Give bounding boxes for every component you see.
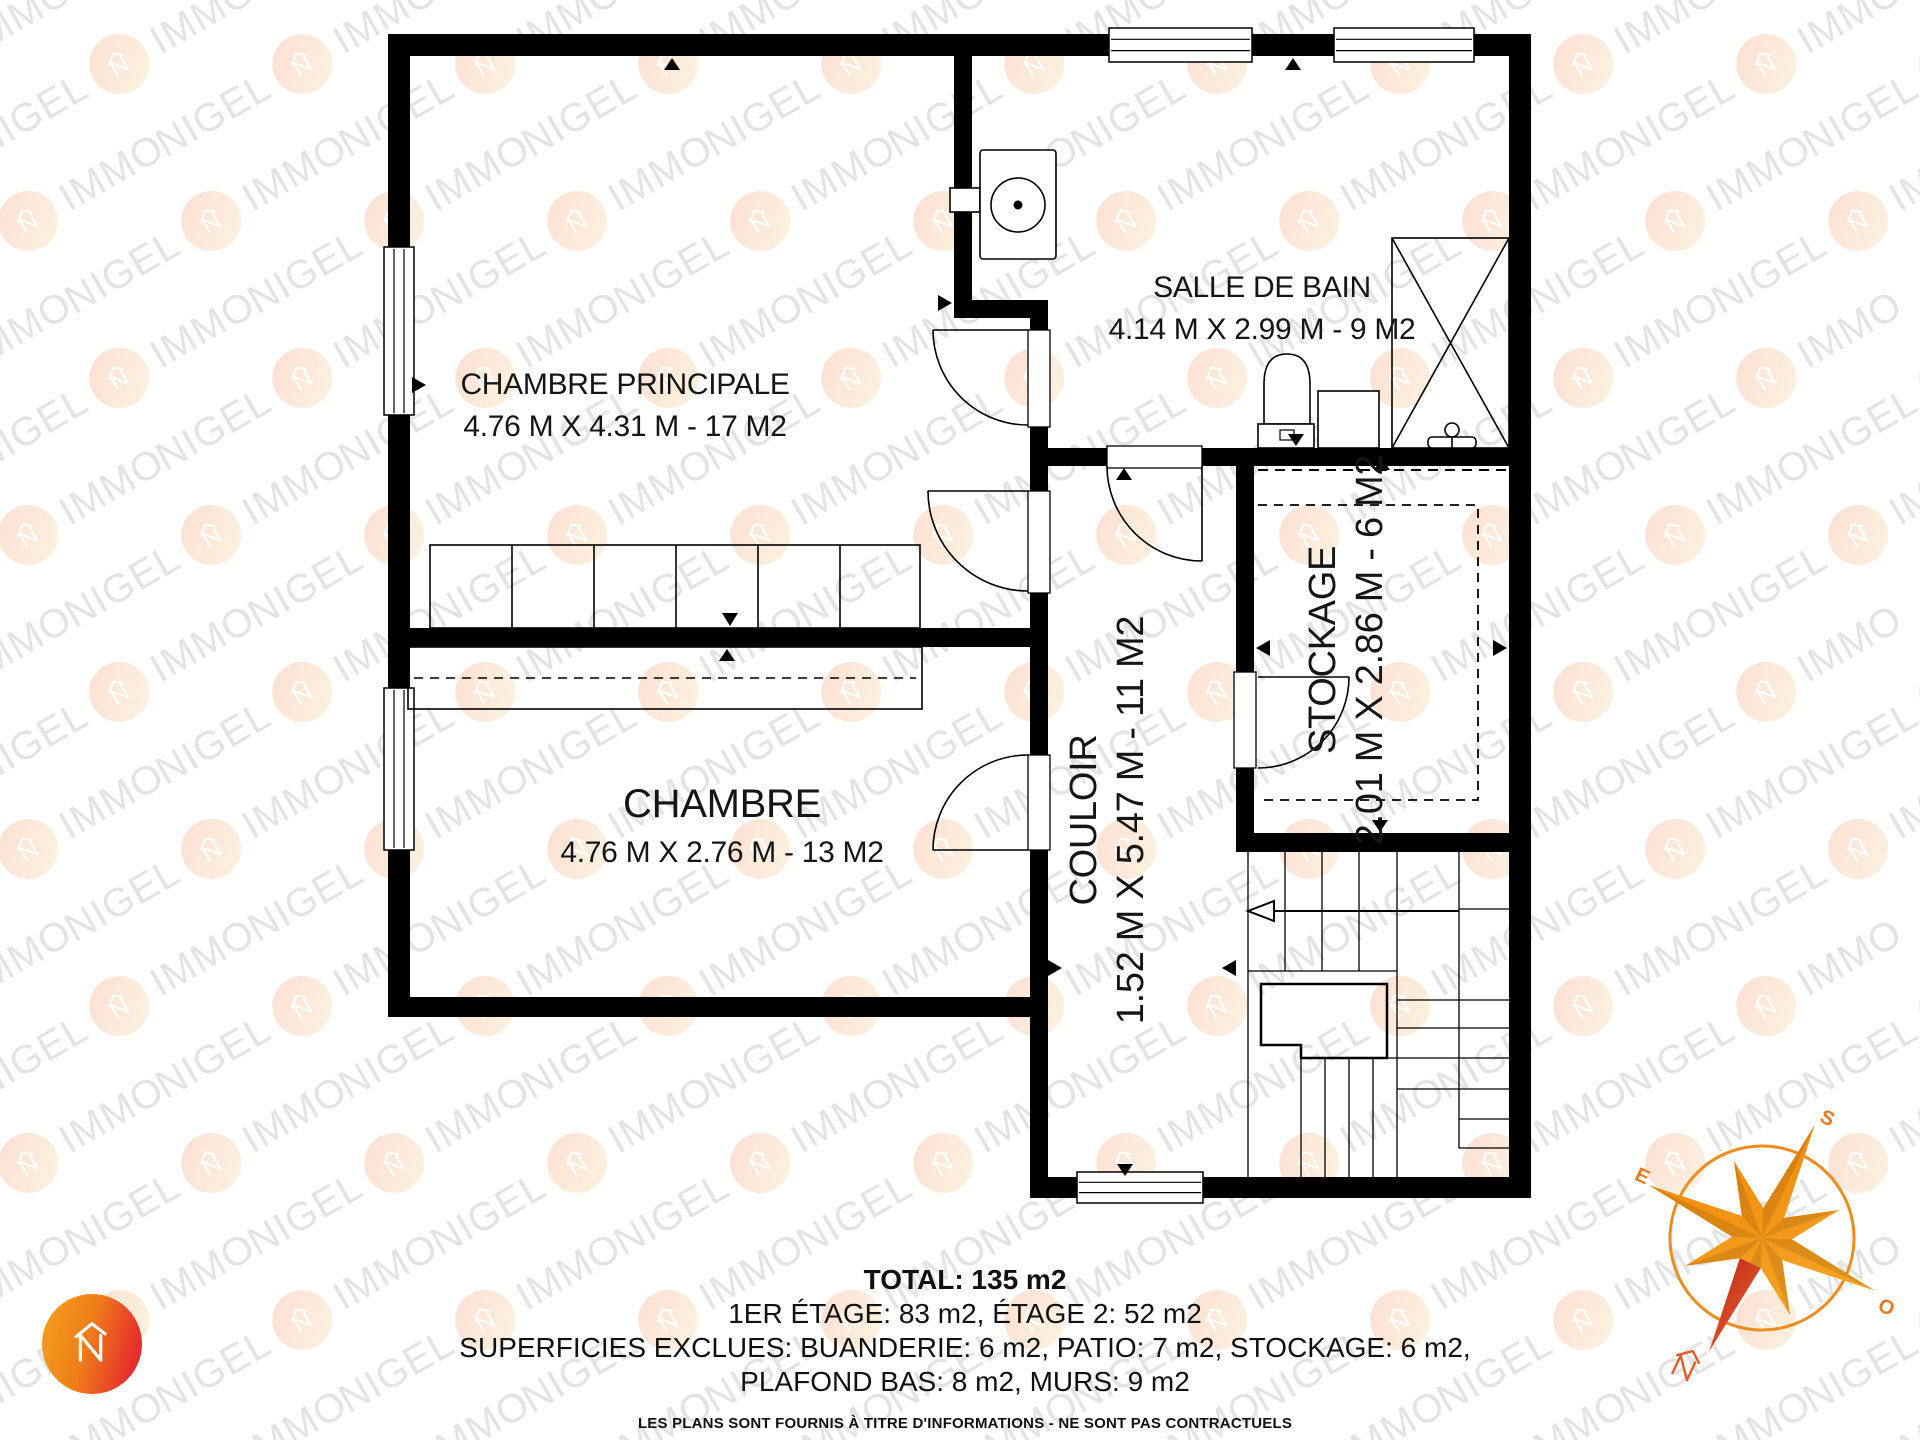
room-label-master-bedroom: CHAMBRE PRINCIPALE 4.76 M X 4.31 M - 17 …	[460, 364, 789, 448]
room-name: STOCKAGE	[1300, 455, 1347, 845]
brand-logo	[42, 1294, 142, 1394]
wall-jog	[954, 300, 1048, 318]
wall-east-seg4	[1030, 850, 1048, 1177]
wardrobe-master-bedroom	[430, 545, 920, 628]
marker-wall-bedrooms-up	[722, 613, 738, 626]
wall-between-bedrooms	[388, 628, 1030, 647]
marker-wall-bedrooms-down	[719, 649, 735, 661]
marker-jog	[938, 295, 952, 311]
wall-bathroom-left	[954, 56, 972, 318]
marker-top-master	[664, 58, 680, 70]
door-jamb-master-hallway	[1028, 491, 1050, 593]
compass-star	[1596, 1072, 1920, 1404]
summary-total: TOTAL: 135 m2	[459, 1263, 1470, 1297]
staircase	[1248, 852, 1509, 1177]
window-hallway-bottom	[1077, 1172, 1203, 1203]
door-bathroom	[1107, 466, 1202, 561]
door-bedroom	[933, 755, 1028, 850]
room-name: CHAMBRE PRINCIPALE	[460, 364, 789, 406]
room-dims: 1.52 M X 5.47 M - 11 M2	[1108, 616, 1155, 1024]
window-master-bedroom	[384, 247, 414, 415]
door-jamb-bathroom	[1107, 446, 1202, 468]
marker-storage-right	[1493, 640, 1507, 656]
wall-east-seg1	[1030, 318, 1048, 330]
window-bedroom	[384, 688, 414, 850]
room-label-storage: STOCKAGE 2.01 M X 2.86 M - 6 M2	[1300, 455, 1394, 845]
wall-storage-left-a	[1236, 466, 1254, 672]
window-bathroom-top-2	[1334, 28, 1474, 62]
door-master-to-bathroom	[933, 330, 1028, 425]
room-name: CHAMBRE	[560, 777, 883, 831]
summary-disclaimer: LES PLANS SONT FOURNIS À TITRE D'INFORMA…	[459, 1415, 1470, 1432]
stair-landing-outline	[1261, 984, 1387, 1058]
door-jamb-master-bathroom	[1028, 330, 1050, 427]
room-name: COULOIR	[1061, 616, 1108, 1024]
wall-right	[1509, 34, 1531, 1198]
door-master-to-hallway	[928, 491, 1028, 591]
marker-storage-left	[1256, 640, 1270, 656]
compass-rose	[1596, 1072, 1920, 1404]
summary-excluded-2: PLAFOND BAS: 8 m2, MURS: 9 m2	[459, 1365, 1470, 1399]
summary-excluded-1: SUPERFICIES EXCLUES: BUANDERIE: 6 m2, PA…	[459, 1331, 1470, 1365]
marker-bathroom-door	[1116, 468, 1132, 480]
toilet-icon	[1258, 354, 1314, 448]
door-jamb-storage	[1234, 672, 1256, 768]
summary-floors: 1ER ÉTAGE: 83 m2, ÉTAGE 2: 52 m2	[459, 1297, 1470, 1331]
marker-hallway-left	[1048, 960, 1062, 976]
compass-north-point	[1699, 1258, 1761, 1356]
wall-bathroom-bottom-a	[1048, 448, 1107, 466]
room-label-bathroom: SALLE DE BAIN 4.14 M X 2.99 M - 9 M2	[1109, 267, 1416, 351]
closet-bedroom	[408, 647, 922, 709]
marker-hallway-right	[1222, 960, 1236, 976]
room-name: SALLE DE BAIN	[1109, 267, 1416, 309]
room-dims: 2.01 M X 2.86 M - 6 M2	[1347, 455, 1394, 845]
wall-east-seg2	[1030, 427, 1048, 491]
marker-top-bathroom	[1285, 58, 1301, 70]
area-summary: TOTAL: 135 m2 1ER ÉTAGE: 83 m2, ÉTAGE 2:…	[459, 1263, 1470, 1432]
marker-left-wall	[412, 377, 426, 393]
floor-plan	[0, 0, 1920, 1440]
wall-bedroom-bottom	[388, 997, 1048, 1017]
room-dims: 4.76 M X 2.76 M - 13 M2	[560, 831, 883, 875]
room-label-hallway: COULOIR 1.52 M X 5.47 M - 11 M2	[1061, 616, 1155, 1024]
door-jamb-bedroom	[1028, 755, 1050, 850]
bathroom-cabinet	[1318, 391, 1379, 448]
room-label-bedroom: CHAMBRE 4.76 M X 2.76 M - 13 M2	[560, 777, 883, 875]
floorplan-page: NIGELIMMONIGELIMMONIGELIMMONIGELIMMONIGE…	[0, 0, 1920, 1440]
room-dims: 4.14 M X 2.99 M - 9 M2	[1109, 309, 1416, 351]
window-bathroom-top-1	[1109, 28, 1252, 62]
stair-direction-arrow	[1248, 901, 1459, 921]
room-dims: 4.76 M X 4.31 M - 17 M2	[460, 406, 789, 448]
wall-east-seg3	[1030, 593, 1048, 755]
wall-left	[388, 34, 410, 1017]
brand-n-house-icon	[63, 1315, 121, 1373]
